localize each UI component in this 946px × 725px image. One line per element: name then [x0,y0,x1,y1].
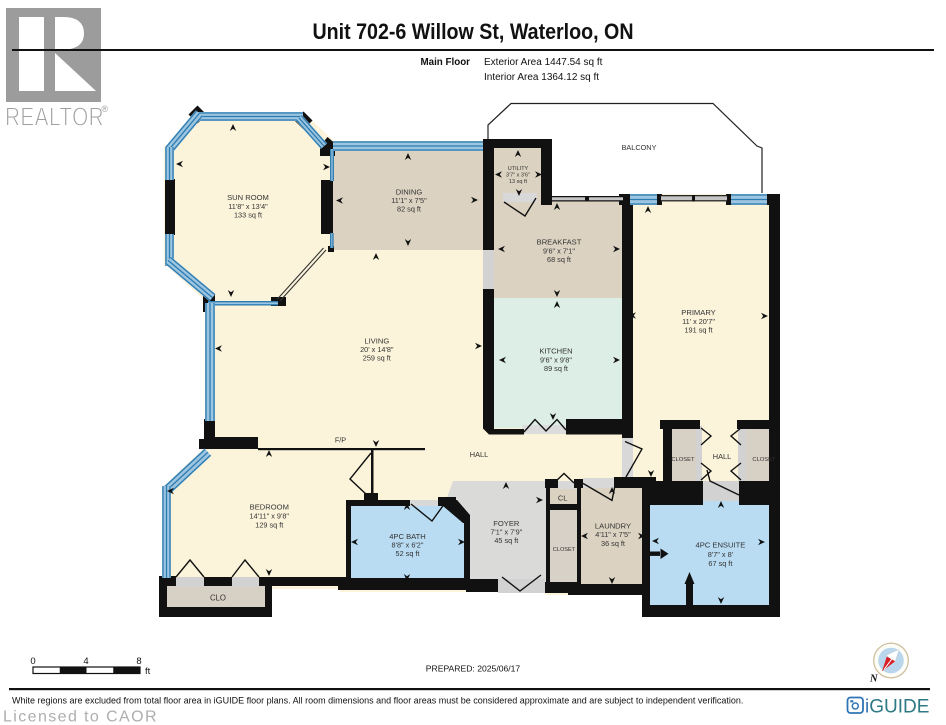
svg-text:SUN ROOM: SUN ROOM [227,193,269,202]
svg-text:68 sq ft: 68 sq ft [547,255,571,264]
svg-text:129 sq ft: 129 sq ft [255,520,283,529]
svg-text:PREPARED: 2025/06/17: PREPARED: 2025/06/17 [426,664,521,674]
svg-text:BALCONY: BALCONY [622,143,657,152]
svg-text:BREAKFAST: BREAKFAST [537,238,582,247]
svg-text:CLOSET: CLOSET [752,457,776,463]
svg-text:9'6" x 9'8": 9'6" x 9'8" [540,355,572,364]
svg-text:CLO: CLO [210,594,226,603]
svg-text:HALL: HALL [713,452,732,461]
svg-text:CLOSET: CLOSET [671,457,695,463]
svg-text:BEDROOM: BEDROOM [250,503,289,512]
svg-text:45 sq ft: 45 sq ft [494,536,518,545]
svg-text:LAUNDRY: LAUNDRY [595,521,631,530]
svg-text:89 sq ft: 89 sq ft [544,364,568,373]
svg-text:67 sq ft: 67 sq ft [708,559,732,568]
svg-text:4: 4 [83,656,88,667]
svg-text:259 sq ft: 259 sq ft [363,353,391,362]
svg-text:11'8" x 13'4": 11'8" x 13'4" [228,202,268,211]
svg-text:8'7" x 8': 8'7" x 8' [708,550,734,559]
svg-text:0: 0 [30,656,35,667]
svg-text:9'6" x 7'1": 9'6" x 7'1" [543,246,575,255]
svg-text:52 sq ft: 52 sq ft [396,549,420,558]
svg-text:8: 8 [136,656,141,667]
svg-text:HALL: HALL [470,450,489,459]
svg-text:KITCHEN: KITCHEN [539,347,572,356]
svg-text:191 sq ft: 191 sq ft [685,326,713,335]
svg-text:4'11" x 7'5": 4'11" x 7'5" [595,530,631,539]
svg-text:4PC ENSUITE: 4PC ENSUITE [696,541,746,550]
svg-text:PRIMARY: PRIMARY [681,308,715,317]
svg-text:3'7" x 3'6": 3'7" x 3'6" [506,172,530,178]
svg-text:N: N [869,674,878,685]
svg-text:13 sq ft: 13 sq ft [509,179,528,185]
svg-text:133 sq ft: 133 sq ft [234,211,262,220]
svg-text:CLOSET: CLOSET [553,547,576,553]
svg-text:ft: ft [145,666,151,677]
svg-text:11' x 20'7": 11' x 20'7" [682,317,715,326]
svg-text:Licensed to CAOR: Licensed to CAOR [3,709,158,725]
svg-text:36 sq ft: 36 sq ft [601,539,625,548]
svg-text:F/P: F/P [335,436,346,445]
svg-text:iGUIDE: iGUIDE [865,697,929,718]
svg-text:CL: CL [558,494,568,503]
svg-text:82 sq ft: 82 sq ft [397,204,421,213]
svg-text:UTILITY: UTILITY [508,166,529,172]
svg-text:White regions are excluded fro: White regions are excluded from total fl… [12,696,743,706]
svg-text:14'11" x 9'8": 14'11" x 9'8" [250,512,290,521]
